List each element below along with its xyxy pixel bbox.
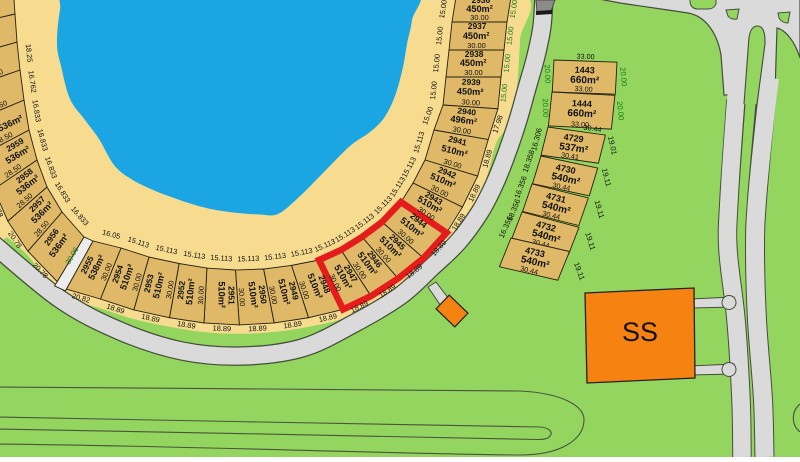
svg-text:15.00: 15.00 <box>505 26 516 45</box>
svg-text:15.00: 15.00 <box>498 83 509 102</box>
svg-text:510m²: 510m² <box>217 281 227 308</box>
svg-text:2951: 2951 <box>227 286 237 305</box>
svg-text:33.00: 33.00 <box>574 84 592 94</box>
svg-text:20.00: 20.00 <box>541 98 551 117</box>
svg-text:450m²: 450m² <box>460 58 487 68</box>
svg-text:30.00: 30.00 <box>461 97 480 107</box>
svg-text:30.00: 30.00 <box>464 68 483 77</box>
svg-text:450m²: 450m² <box>463 31 490 41</box>
svg-text:15.113: 15.113 <box>210 253 233 264</box>
svg-text:18.25: 18.25 <box>24 43 35 62</box>
svg-text:20.00: 20.00 <box>618 67 629 87</box>
svg-text:15.00: 15.00 <box>428 81 439 100</box>
svg-text:18.89: 18.89 <box>248 323 267 333</box>
svg-text:15.00: 15.00 <box>434 26 445 45</box>
svg-text:30.00: 30.00 <box>467 41 486 50</box>
svg-text:20.00: 20.00 <box>543 64 553 83</box>
svg-text:33.00: 33.00 <box>576 52 594 62</box>
svg-text:30.00: 30.00 <box>470 13 489 22</box>
svg-text:30.00: 30.00 <box>237 288 247 307</box>
svg-text:15.00: 15.00 <box>502 54 513 73</box>
svg-text:2937: 2937 <box>468 21 487 31</box>
svg-text:18.89: 18.89 <box>212 323 231 333</box>
svg-text:30.00: 30.00 <box>196 286 206 305</box>
svg-text:15.00: 15.00 <box>431 54 442 73</box>
svg-text:15.113: 15.113 <box>237 254 259 264</box>
svg-text:SS: SS <box>622 317 658 347</box>
svg-text:450m²: 450m² <box>457 86 484 97</box>
svg-text:1443: 1443 <box>575 65 595 76</box>
